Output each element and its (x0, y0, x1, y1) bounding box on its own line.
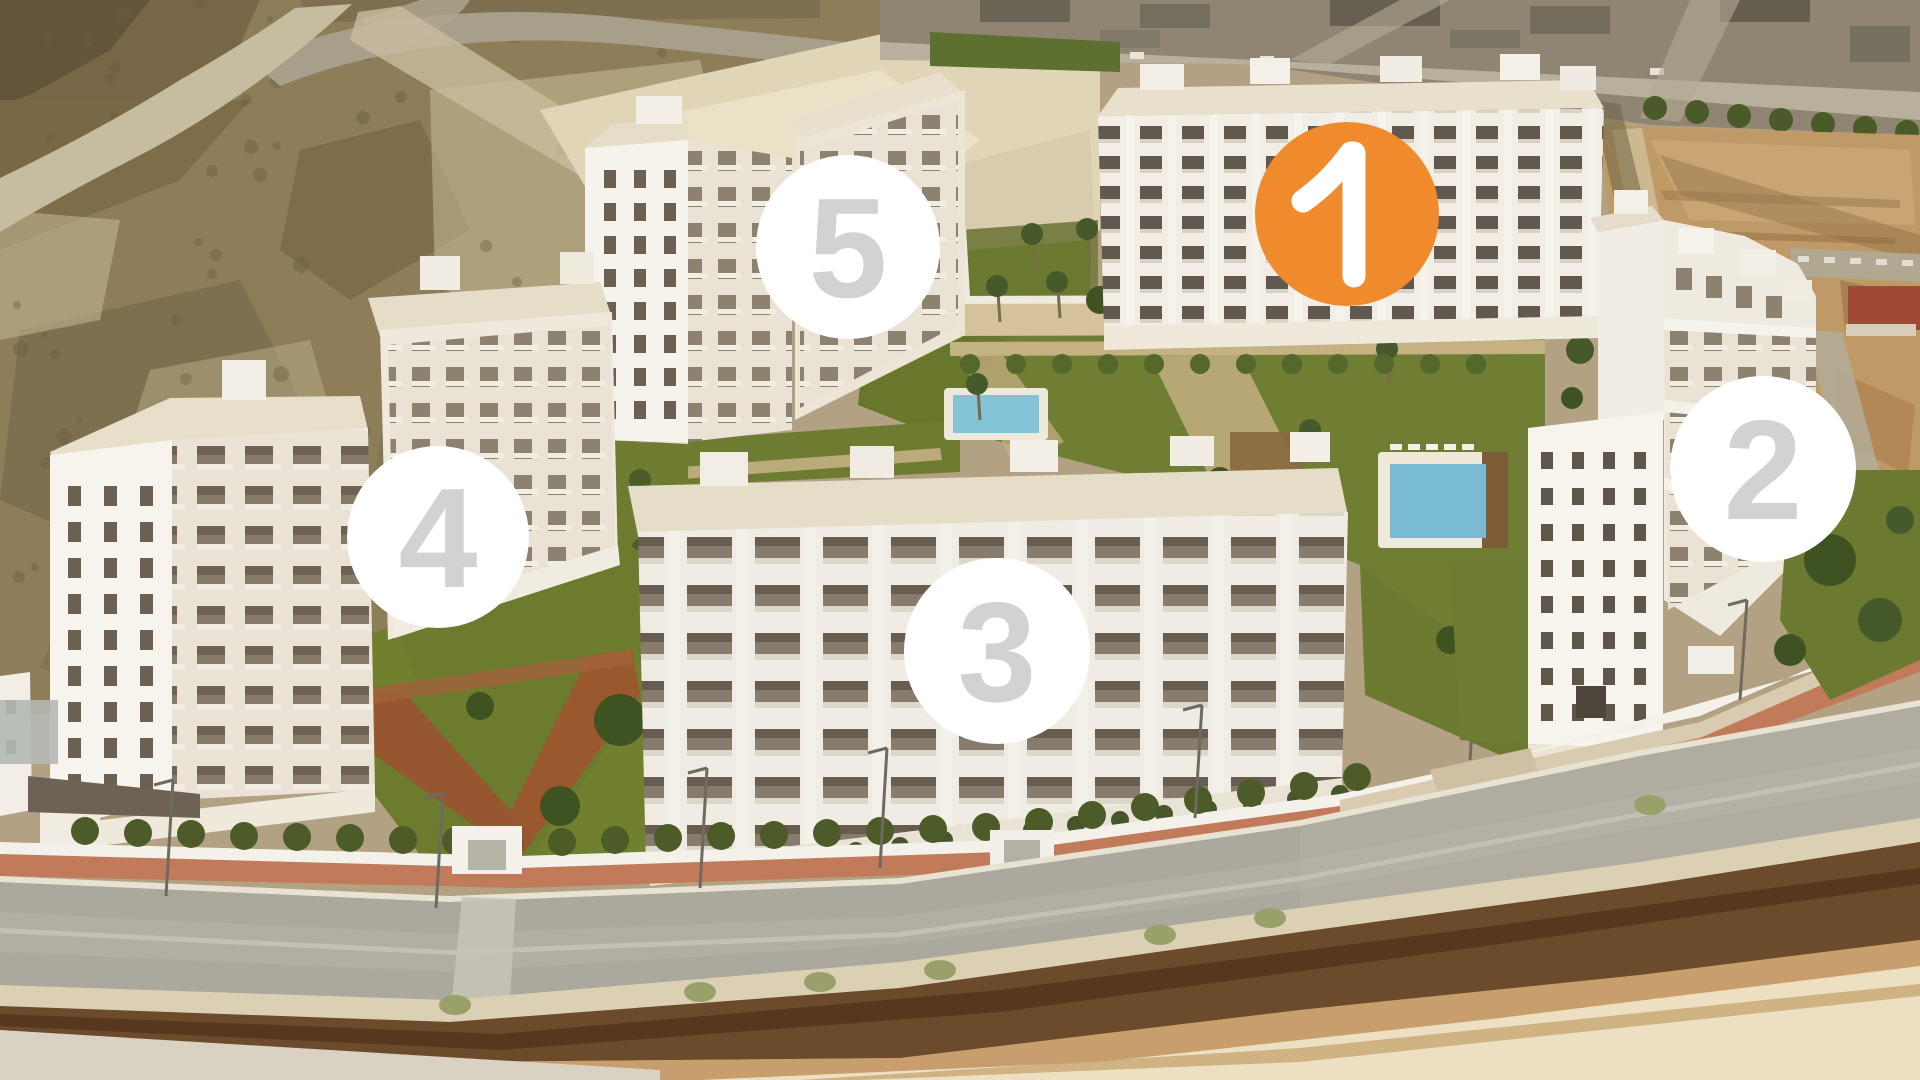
svg-text:4: 4 (399, 459, 478, 618)
svg-text:2: 2 (1724, 391, 1803, 550)
svg-text:3: 3 (958, 573, 1037, 732)
svg-text:5: 5 (809, 169, 888, 328)
